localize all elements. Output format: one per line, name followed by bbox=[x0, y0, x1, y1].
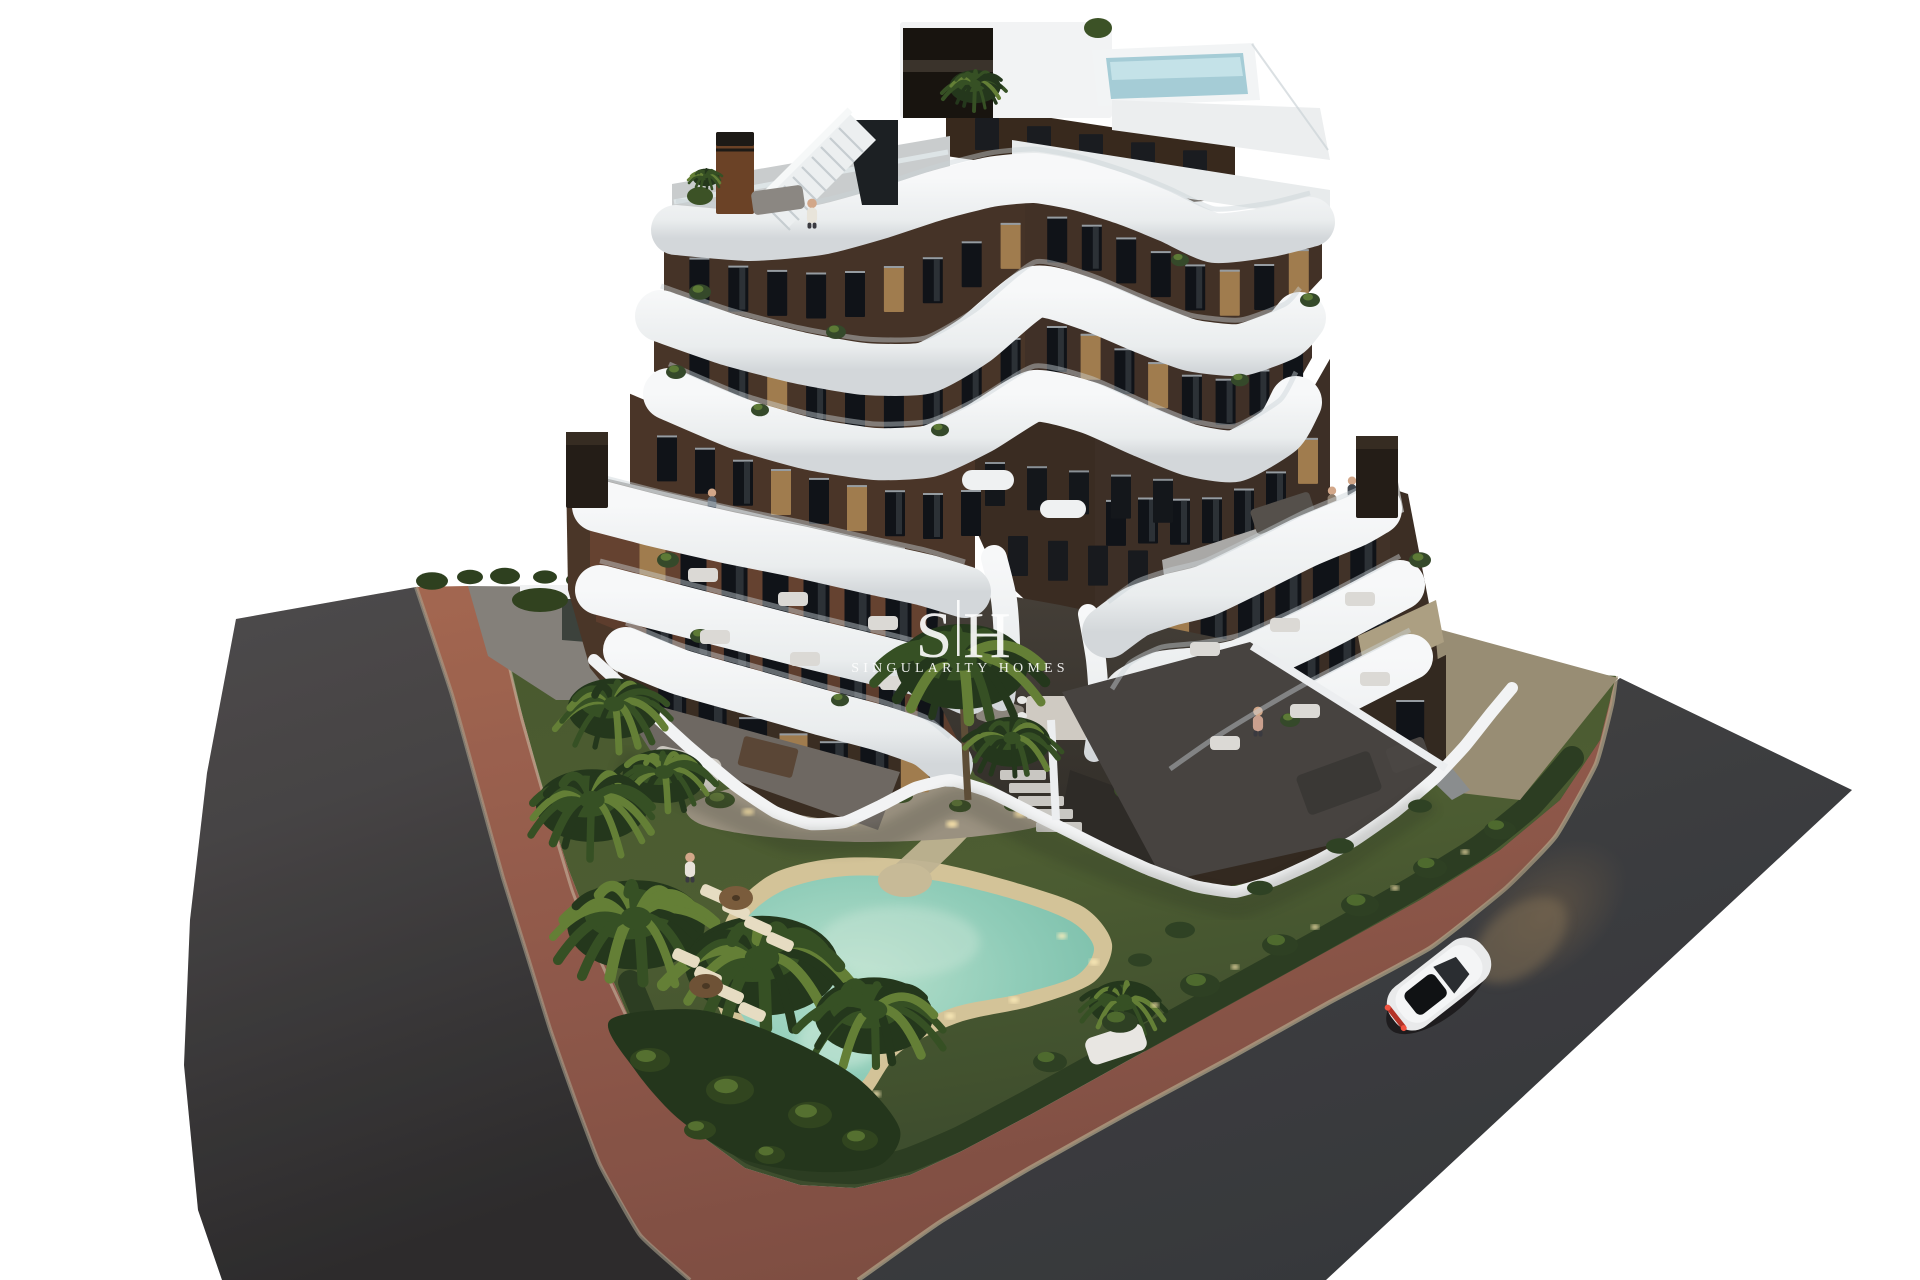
svg-text:SINGULARITY HOMES: SINGULARITY HOMES bbox=[851, 661, 1069, 676]
